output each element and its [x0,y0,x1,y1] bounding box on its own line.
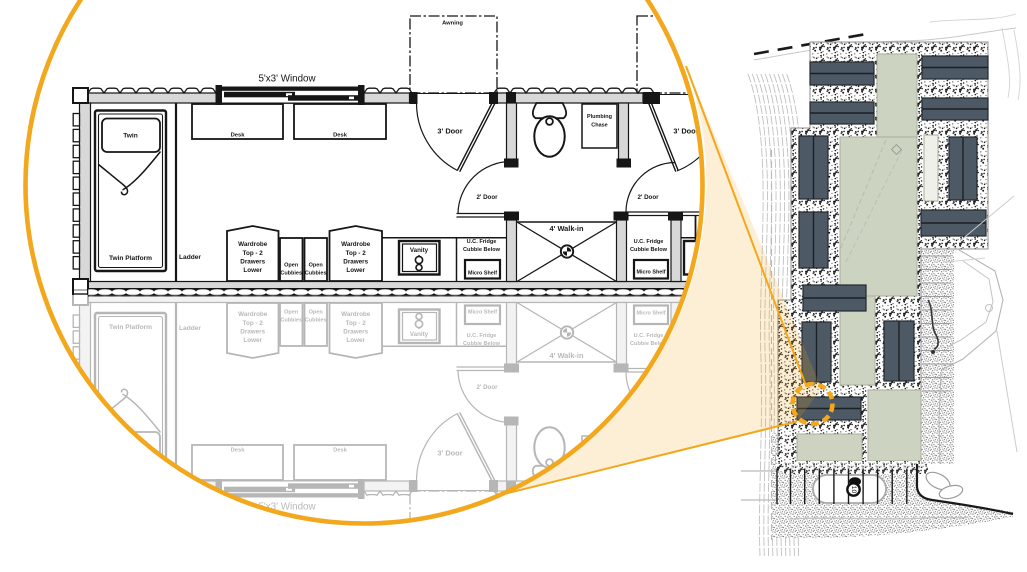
svg-text:Open: Open [309,262,324,268]
svg-text:Drawers: Drawers [240,259,265,266]
svg-text:Top - 2: Top - 2 [243,320,264,327]
svg-text:Lower: Lower [346,267,365,274]
svg-text:3' Door: 3' Door [437,449,462,458]
svg-text:Plumbing: Plumbing [587,114,612,120]
svg-text:Cubbies: Cubbies [305,270,327,276]
svg-text:5'x3' Window: 5'x3' Window [258,73,316,84]
svg-text:Open: Open [284,309,299,315]
svg-text:Vanity: Vanity [410,331,429,338]
svg-text:Desk: Desk [333,448,348,454]
svg-text:Cubbies: Cubbies [280,317,302,323]
svg-text:U.C. Fridge: U.C. Fridge [634,333,664,339]
svg-text:Drawers: Drawers [343,259,368,266]
svg-text:Vanity: Vanity [410,247,429,254]
svg-text:Cubbie Below: Cubbie Below [630,247,668,253]
svg-text:3' Door: 3' Door [437,127,462,136]
svg-text:2' Door: 2' Door [476,384,498,391]
svg-text:Wardrobe: Wardrobe [341,241,371,248]
svg-text:Desk: Desk [231,133,246,139]
svg-text:Lower: Lower [243,337,262,344]
svg-text:3' Door: 3' Door [673,127,698,136]
svg-text:Lower: Lower [243,267,262,274]
svg-text:Micro Shelf: Micro Shelf [636,310,665,316]
svg-text:Cubbies: Cubbies [280,270,302,276]
svg-text:Ladder: Ladder [179,254,201,261]
svg-text:Micro Shelf: Micro Shelf [468,270,497,276]
svg-text:2' Door: 2' Door [637,194,659,201]
svg-text:Twin Platform: Twin Platform [109,324,152,331]
svg-text:Desk: Desk [231,448,246,454]
svg-text:Top - 2: Top - 2 [346,320,367,327]
svg-text:U.C. Fridge: U.C. Fridge [467,239,497,245]
svg-text:Micro Shelf: Micro Shelf [468,309,497,315]
svg-text:2' Door: 2' Door [476,194,498,201]
svg-text:Desk: Desk [333,133,348,139]
svg-text:Chase: Chase [591,122,608,128]
svg-text:Twin: Twin [123,132,138,139]
svg-text:U.C. Fridge: U.C. Fridge [634,239,664,245]
svg-text:4' Walk-in: 4' Walk-in [550,351,584,360]
svg-text:Cubbie Below: Cubbie Below [463,247,501,253]
svg-text:Cubbie Below: Cubbie Below [463,341,501,347]
svg-text:4' Walk-in: 4' Walk-in [550,224,584,233]
svg-text:Lower: Lower [346,337,365,344]
svg-text:Cubbies: Cubbies [305,317,327,323]
svg-text:Ladder: Ladder [179,325,201,332]
svg-text:10: 10 [850,486,857,494]
svg-text:Drawers: Drawers [240,329,265,336]
svg-text:Wardrobe: Wardrobe [341,311,371,318]
svg-text:Open: Open [309,309,324,315]
svg-text:Top - 2: Top - 2 [346,250,367,257]
svg-text:U.C. Fridge: U.C. Fridge [467,333,497,339]
svg-text:Micro Shelf: Micro Shelf [636,269,665,275]
svg-text:Wardrobe: Wardrobe [238,241,268,248]
svg-text:Awning: Awning [442,21,463,27]
svg-text:Top - 2: Top - 2 [243,250,264,257]
svg-text:Open: Open [284,262,299,268]
svg-text:Twin Platform: Twin Platform [109,255,152,262]
svg-text:Drawers: Drawers [343,329,368,336]
svg-text:Wardrobe: Wardrobe [238,311,268,318]
